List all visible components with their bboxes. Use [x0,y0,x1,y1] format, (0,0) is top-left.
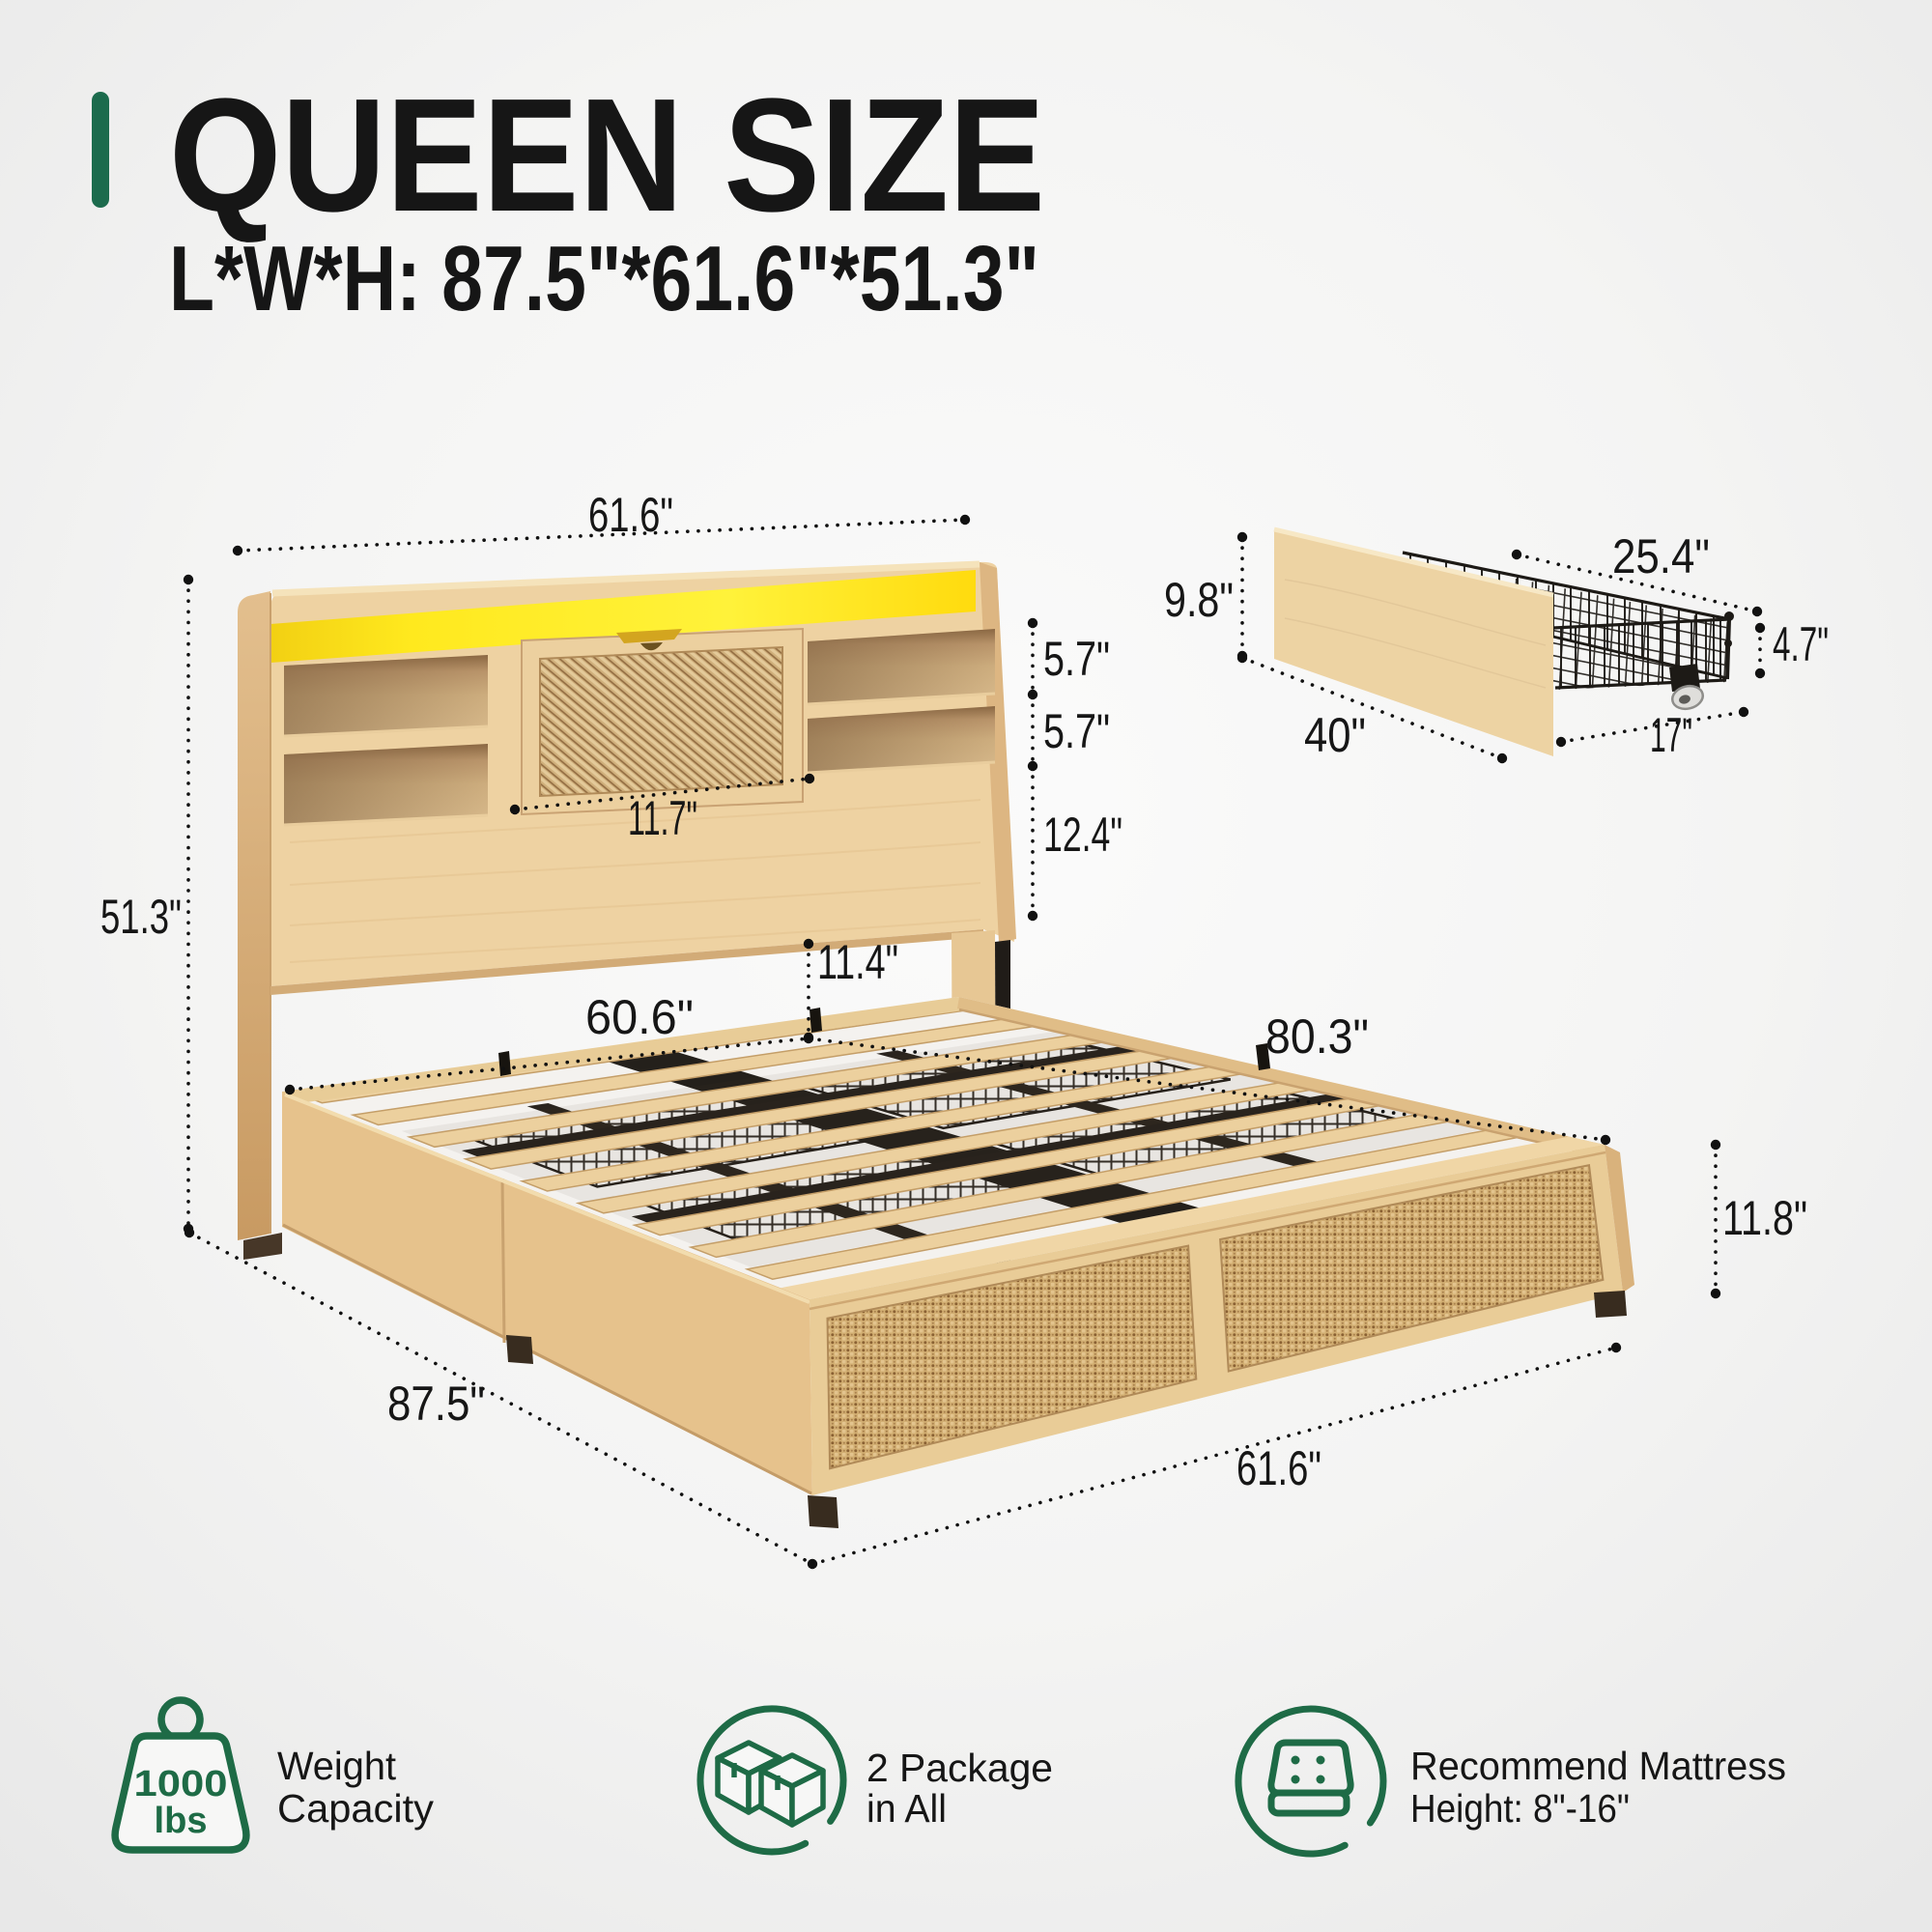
svg-text:51.3": 51.3" [100,890,182,944]
svg-text:5.7": 5.7" [1043,704,1110,758]
svg-text:Height: 8"-16": Height: 8"-16" [1410,1786,1630,1831]
svg-text:lbs: lbs [155,1801,208,1841]
svg-text:L*W*H: 87.5"*61.6"*51.3": L*W*H: 87.5"*61.6"*51.3" [169,227,1039,330]
svg-text:11.8": 11.8" [1722,1191,1807,1245]
svg-text:Capacity: Capacity [277,1786,435,1831]
svg-text:40": 40" [1304,708,1366,762]
svg-text:80.3": 80.3" [1265,1009,1369,1064]
svg-text:60.6": 60.6" [585,990,694,1044]
svg-text:1000: 1000 [134,1764,228,1804]
svg-text:11.7": 11.7" [628,791,697,845]
svg-text:Recommend Mattress: Recommend Mattress [1410,1744,1786,1788]
svg-text:12.4": 12.4" [1043,808,1122,862]
svg-text:87.5": 87.5" [387,1377,485,1431]
svg-text:17": 17" [1650,708,1692,762]
svg-text:11.4": 11.4" [817,935,898,989]
svg-text:5.7": 5.7" [1043,632,1110,686]
svg-text:25.4": 25.4" [1612,529,1710,583]
svg-text:2 Package: 2 Package [867,1746,1053,1790]
svg-text:61.6": 61.6" [588,488,673,542]
svg-text:61.6": 61.6" [1236,1441,1321,1495]
svg-text:9.8": 9.8" [1164,573,1234,627]
svg-text:4.7": 4.7" [1773,617,1829,671]
svg-text:Weight: Weight [277,1744,397,1788]
svg-text:in All: in All [867,1786,947,1831]
svg-text:QUEEN SIZE: QUEEN SIZE [169,66,1045,245]
